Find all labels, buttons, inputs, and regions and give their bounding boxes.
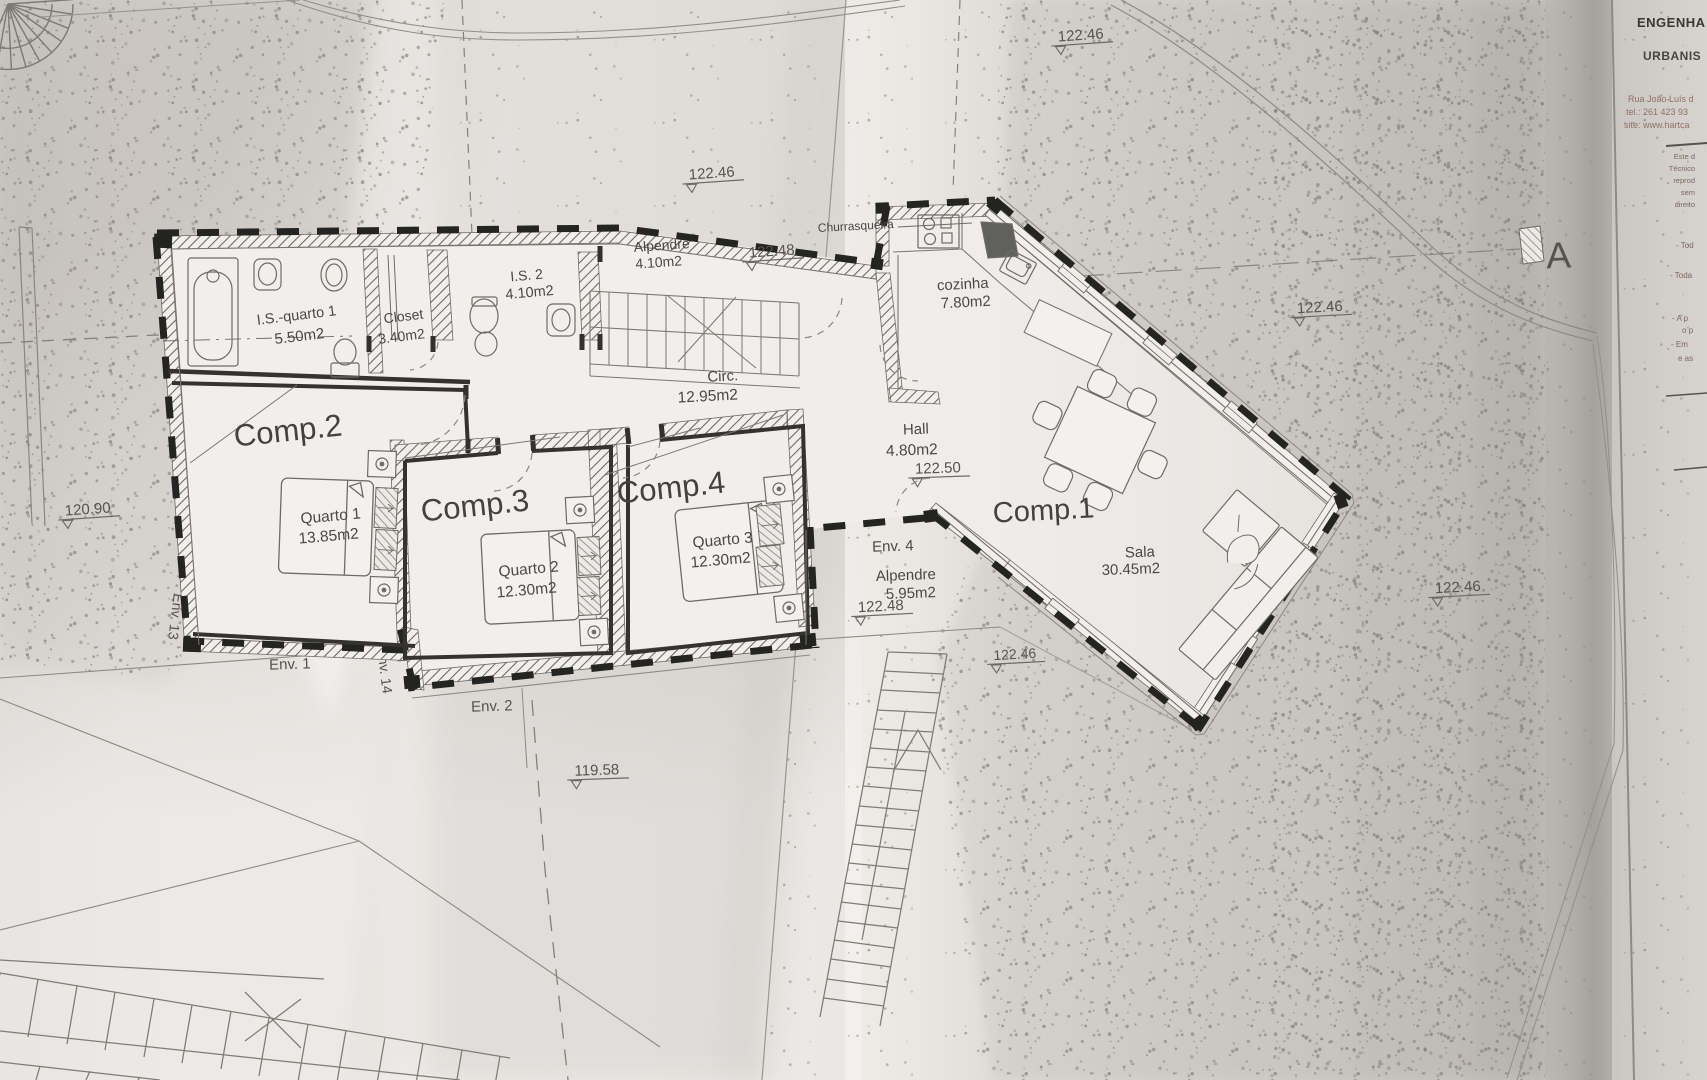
svg-text:Técnico: Técnico [1669, 164, 1695, 173]
svg-text:A: A [1546, 235, 1572, 277]
svg-text:sem: sem [1681, 188, 1695, 197]
svg-text:I.S. 2: I.S. 2 [510, 266, 544, 285]
svg-text:Sala: Sala [1125, 543, 1156, 561]
svg-text:ENGENHA: ENGENHA [1637, 15, 1706, 30]
svg-text:o p: o p [1682, 326, 1694, 335]
svg-text:site: www.hartca: site: www.hartca [1624, 120, 1690, 130]
svg-text:tel.: 261 423 93: tel.: 261 423 93 [1626, 107, 1688, 117]
svg-text:4.80m2: 4.80m2 [886, 441, 938, 460]
svg-text:URBANIS: URBANIS [1643, 49, 1701, 63]
svg-text:Comp.1: Comp.1 [992, 492, 1095, 529]
svg-text:30.45m2: 30.45m2 [1101, 560, 1160, 579]
svg-text:Alpendre: Alpendre [876, 566, 937, 585]
svg-text:Env. 4: Env. 4 [872, 537, 914, 555]
svg-text:- Toda: - Toda [1670, 271, 1693, 280]
svg-text:12.95m2: 12.95m2 [677, 386, 738, 406]
svg-text:- Tod: - Tod [1676, 241, 1694, 250]
svg-text:Rua João Luís d: Rua João Luís d [1628, 94, 1694, 104]
svg-text:7.80m2: 7.80m2 [940, 293, 991, 313]
svg-text:122.46: 122.46 [993, 645, 1037, 663]
svg-text:e as: e as [1678, 354, 1693, 363]
svg-text:Este d: Este d [1674, 152, 1695, 161]
svg-text:direito: direito [1675, 200, 1695, 209]
svg-text:- Em: - Em [1671, 340, 1688, 349]
svg-text:4.10m2: 4.10m2 [635, 252, 683, 271]
svg-text:cozinha: cozinha [937, 275, 990, 295]
svg-text:Env. 2: Env. 2 [471, 697, 513, 715]
svg-text:122.48: 122.48 [857, 597, 904, 616]
svg-text:Circ.: Circ. [707, 367, 739, 386]
svg-text:122.50: 122.50 [915, 459, 961, 478]
svg-text:122.46: 122.46 [1296, 298, 1343, 317]
svg-text:- A p: - A p [1672, 314, 1689, 323]
svg-text:122.46: 122.46 [1434, 578, 1481, 597]
svg-text:119.58: 119.58 [574, 761, 619, 780]
svg-text:Hall: Hall [903, 421, 929, 439]
svg-text:Env. 1: Env. 1 [269, 655, 311, 673]
svg-text:reprod: reprod [1673, 176, 1695, 185]
